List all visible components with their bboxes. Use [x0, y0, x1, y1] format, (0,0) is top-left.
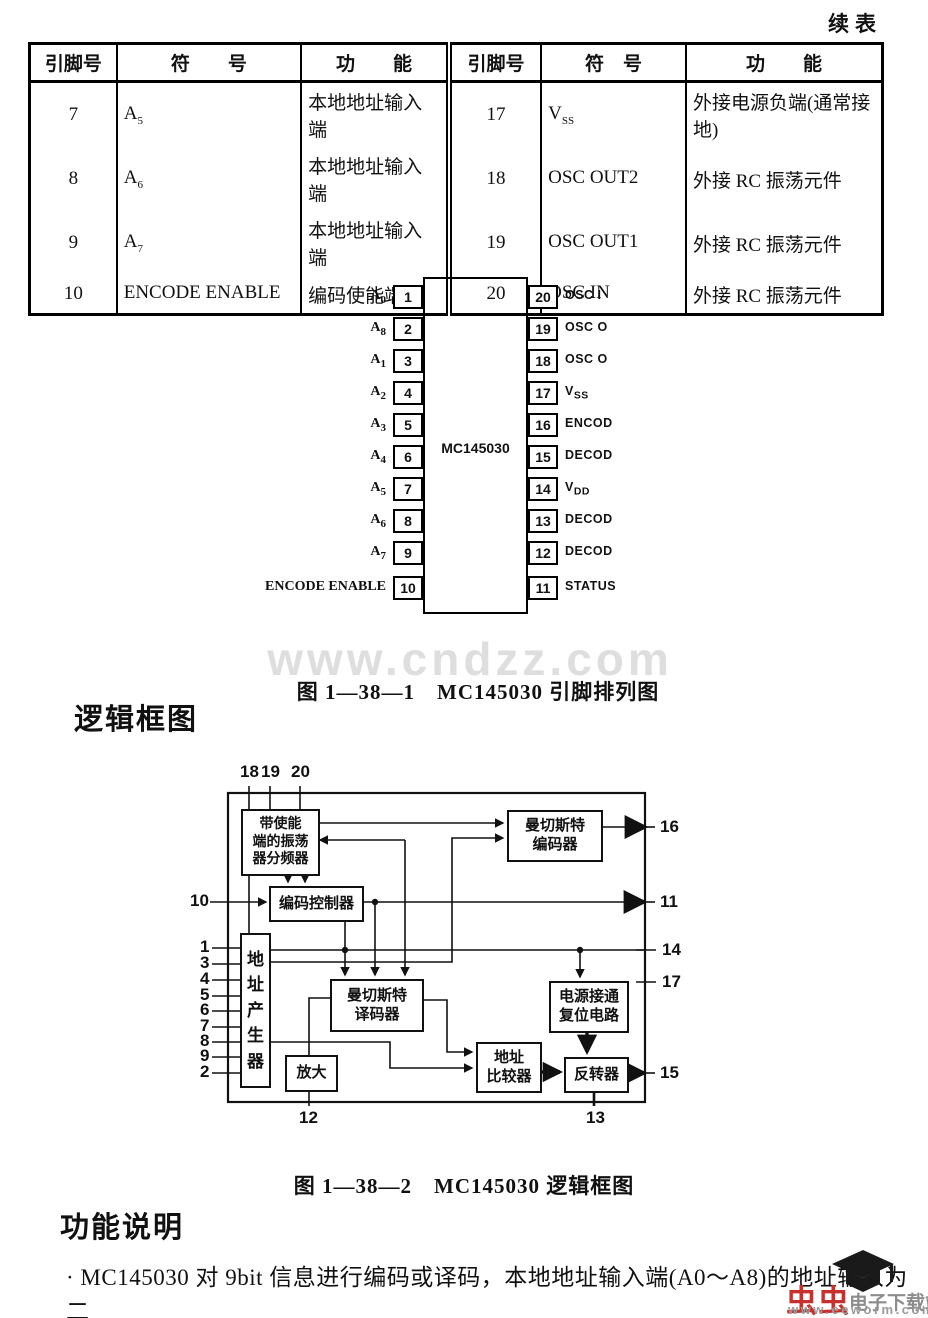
scanned-datasheet-page: 续表 引脚号 符 号 功 能 引脚号 符 号 功 能 7 A5 本地地址输入端 … — [0, 0, 928, 1318]
block-manchester-decoder: 曼切斯特 译码器 — [330, 979, 424, 1032]
block-power-on-reset: 电源接通 复位电路 — [549, 981, 629, 1033]
logic-pin-19: 19 — [261, 762, 280, 782]
block-manchester-encoder: 曼切斯特 编码器 — [507, 810, 603, 862]
logic-pin-13: 13 — [586, 1108, 605, 1128]
logic-pin-17: 17 — [662, 972, 681, 992]
logic-pin-2: 2 — [200, 1062, 209, 1082]
logic-pin-20: 20 — [291, 762, 310, 782]
block-encode-controller: 编码控制器 — [269, 886, 364, 922]
logic-pin-14: 14 — [662, 940, 681, 960]
logic-pin-10: 10 — [190, 891, 209, 911]
logic-diagram-wires — [0, 0, 928, 1318]
block-address-comparator: 地址 比较器 — [476, 1042, 542, 1093]
block-oscillator-divider: 带使能 端的振荡 器分频器 — [241, 809, 320, 876]
block-amplifier: 放大 — [285, 1055, 338, 1092]
logic-pin-12: 12 — [299, 1108, 318, 1128]
logic-pin-16: 16 — [660, 817, 679, 837]
logic-pin-11: 11 — [660, 892, 678, 912]
logic-pin-18: 18 — [240, 762, 259, 782]
block-inverter: 反转器 — [564, 1057, 629, 1093]
site-url: www.eeworm.com — [788, 1302, 928, 1317]
block-address-generator: 地址产生器 — [240, 933, 271, 1088]
logic-pin-15: 15 — [660, 1063, 679, 1083]
